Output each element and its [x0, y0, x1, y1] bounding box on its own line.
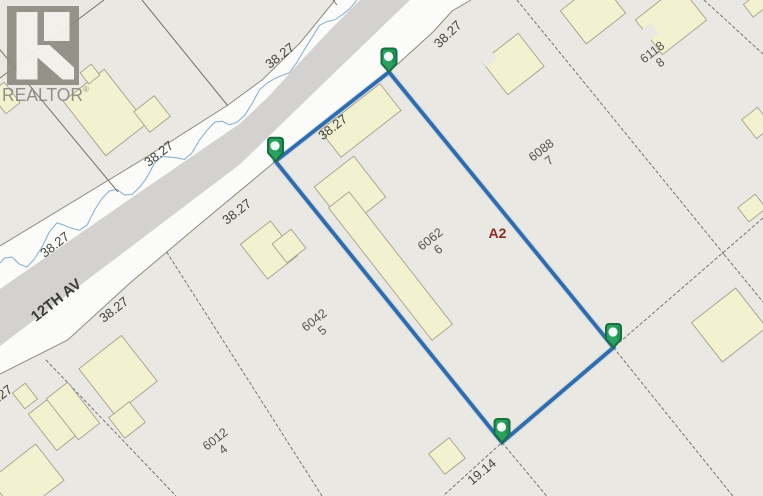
svg-text:A2: A2 — [489, 225, 507, 241]
svg-text:REALTOR: REALTOR — [2, 84, 83, 105]
svg-text:®: ® — [83, 85, 89, 94]
